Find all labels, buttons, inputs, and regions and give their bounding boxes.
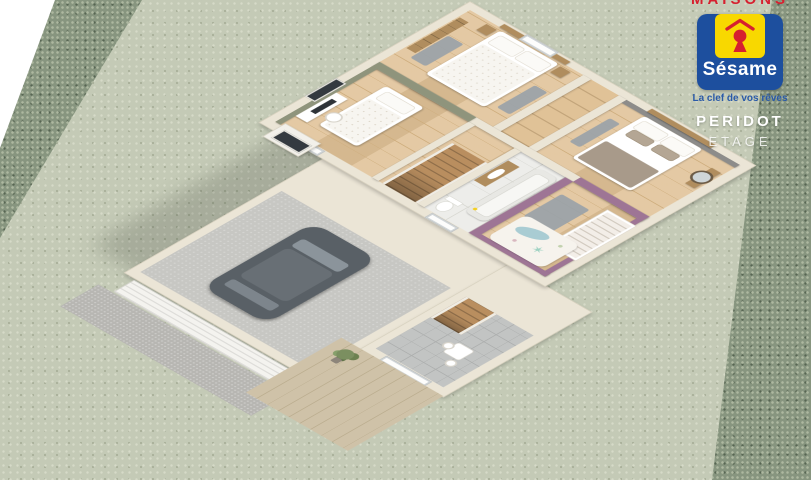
star-cushion: ✶ <box>527 244 548 256</box>
brand-block: MAISONS Sésame La clef de vos rêves PERI… <box>676 0 804 149</box>
logo-wordmark: Sésame <box>697 59 783 81</box>
toy <box>511 239 517 243</box>
keyhole-icon <box>720 17 760 55</box>
brand-top-text: MAISONS <box>676 0 804 8</box>
brand-tagline: La clef de vos rêves <box>676 93 804 104</box>
whale-plush <box>512 224 553 242</box>
floor-plan-render: ✶ MAISONS Sésame La clef de vos rêves PE… <box>0 0 811 480</box>
keyhole-icon-tile <box>715 14 765 58</box>
clipped-brand-text: MAISONS <box>676 0 804 8</box>
sesame-logo: Sésame <box>697 14 783 90</box>
toy <box>557 244 563 248</box>
floor-label: ETAGE <box>676 134 804 149</box>
model-name-label: PERIDOT <box>676 113 804 130</box>
